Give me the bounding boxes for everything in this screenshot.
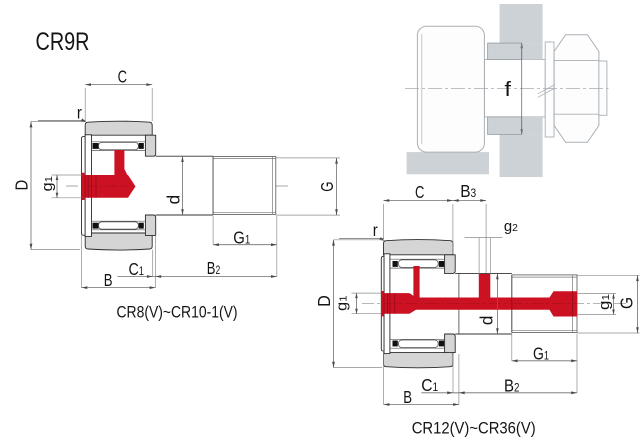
svg-text:B: B <box>104 270 113 290</box>
svg-text:B: B <box>403 387 412 407</box>
svg-text:d: d <box>477 316 497 326</box>
svg-text:f: f <box>505 79 512 101</box>
svg-text:d: d <box>164 195 184 205</box>
svg-text:r: r <box>77 103 82 123</box>
svg-text:CR9R: CR9R <box>36 28 90 56</box>
svg-text:G: G <box>317 182 337 192</box>
svg-text:CR12(V)~CR36(V): CR12(V)~CR36(V) <box>412 418 536 437</box>
svg-text:D: D <box>314 295 334 307</box>
svg-text:C: C <box>415 182 424 202</box>
svg-text:C: C <box>118 66 127 86</box>
svg-text:D: D <box>11 180 31 191</box>
svg-text:r: r <box>373 220 378 240</box>
svg-text:G: G <box>616 297 636 309</box>
svg-text:CR8(V)~CR10-1(V): CR8(V)~CR10-1(V) <box>117 302 238 321</box>
